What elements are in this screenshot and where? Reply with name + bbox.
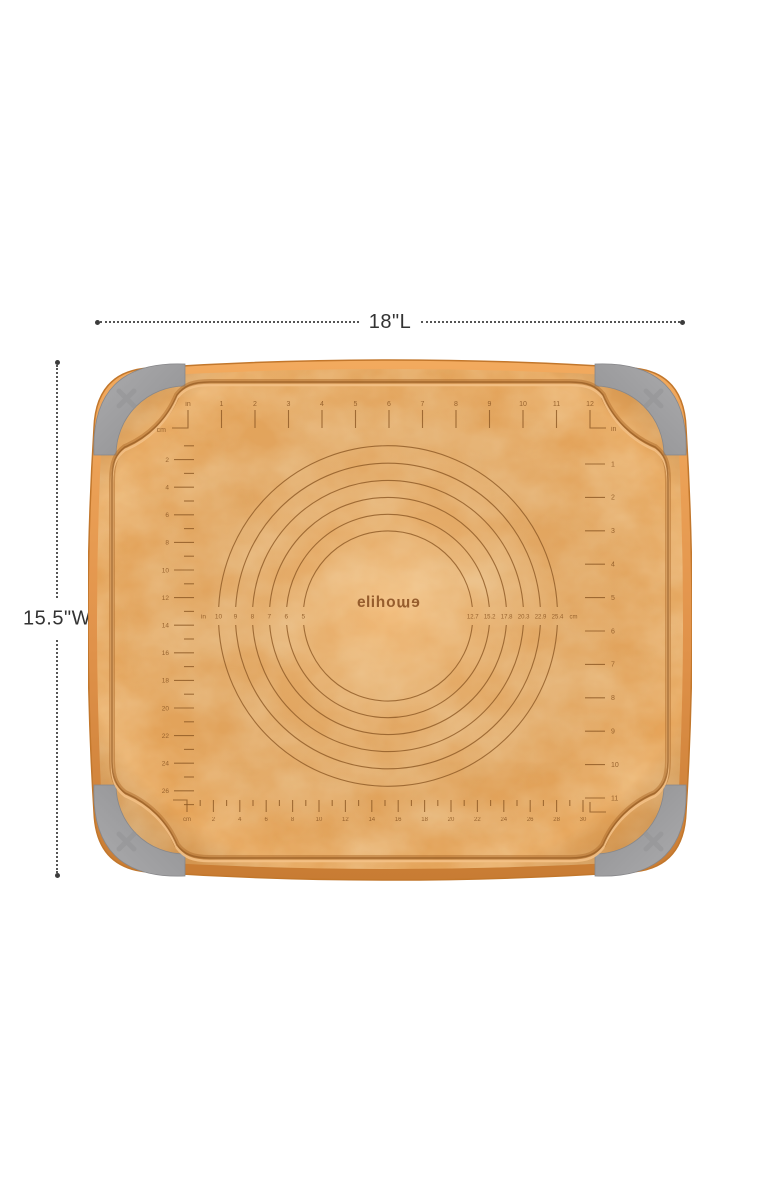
length-label: 18"L bbox=[359, 311, 421, 334]
dimension-endpoint-dot bbox=[680, 320, 685, 325]
ruler-number: 1 bbox=[220, 401, 224, 408]
logo-prefix: eli bbox=[357, 594, 375, 611]
ruler-number: 10 bbox=[519, 401, 527, 408]
ruler-number: 16 bbox=[162, 650, 170, 657]
unit-label: in bbox=[611, 426, 617, 433]
logo-letter: h bbox=[376, 594, 386, 611]
ruler-number: 20 bbox=[448, 817, 455, 823]
ruler-number: 30 bbox=[580, 817, 587, 823]
ruler-number: 20 bbox=[162, 705, 170, 712]
length-dimension: 18"L bbox=[95, 312, 685, 332]
ruler-number: 7 bbox=[421, 401, 425, 408]
unit-label: in bbox=[201, 614, 206, 621]
ruler-number: 3 bbox=[287, 401, 291, 408]
circle-diameter-in: 8 bbox=[251, 614, 255, 621]
ruler-number: 8 bbox=[165, 540, 169, 547]
circle-diameter-in: 6 bbox=[284, 614, 288, 621]
ruler-number: 5 bbox=[354, 401, 358, 408]
ruler-number: 18 bbox=[162, 678, 170, 685]
ruler-number: 8 bbox=[611, 695, 615, 702]
ruler-number: 9 bbox=[611, 729, 615, 736]
surface-shading bbox=[88, 358, 692, 882]
ruler-number: 12 bbox=[162, 595, 170, 602]
ruler-number: 26 bbox=[527, 817, 534, 823]
circle-diameter-cm: 22.9 bbox=[535, 615, 547, 621]
unit-label: cm bbox=[183, 817, 191, 823]
ruler-number: 11 bbox=[611, 795, 618, 802]
ruler-number: 2 bbox=[611, 495, 615, 502]
ruler-number: 22 bbox=[162, 733, 170, 740]
circle-diameter-cm: 25.4 bbox=[552, 615, 564, 621]
ruler-number: 4 bbox=[165, 485, 169, 492]
circle-diameter-cm: 20.3 bbox=[518, 615, 530, 621]
ruler-number: 2 bbox=[165, 457, 169, 464]
unit-label: in bbox=[185, 401, 191, 408]
ruler-number: 24 bbox=[162, 761, 170, 768]
ruler-number: 10 bbox=[316, 817, 323, 823]
ruler-number: 24 bbox=[500, 817, 507, 823]
ruler-number: 16 bbox=[395, 817, 402, 823]
ruler-number: 14 bbox=[162, 623, 170, 630]
logo-letter: e bbox=[411, 594, 420, 611]
ruler-number: 4 bbox=[611, 562, 615, 569]
ruler-number: 8 bbox=[454, 401, 458, 408]
ruler-number: 5 bbox=[611, 595, 615, 602]
circle-diameter-in: 9 bbox=[234, 614, 238, 621]
ruler-number: 28 bbox=[553, 817, 560, 823]
circle-diameter-cm: 15.2 bbox=[484, 615, 496, 621]
logo-letter: m bbox=[396, 595, 410, 612]
dimension-dashed-line bbox=[100, 321, 359, 323]
ruler-number: 3 bbox=[611, 528, 615, 535]
circle-diameter-in: 7 bbox=[268, 614, 272, 621]
product-image: 18"L 15.5"W bbox=[0, 0, 780, 1196]
logo-letter: o bbox=[386, 594, 396, 611]
ruler-number: 22 bbox=[474, 817, 481, 823]
ruler-number: 1 bbox=[611, 461, 615, 468]
ruler-number: 6 bbox=[165, 512, 169, 519]
circle-diameter-in: 5 bbox=[301, 614, 305, 621]
ruler-number: 10 bbox=[162, 567, 170, 574]
circle-diameter-in: 10 bbox=[215, 614, 223, 621]
cutting-board: 1234567891011in12in246810121416182022242… bbox=[88, 358, 692, 882]
ruler-number: 12 bbox=[342, 817, 349, 823]
width-dimension: 15.5"W bbox=[50, 360, 64, 878]
ruler-number: 9 bbox=[488, 401, 492, 408]
ruler-number: 2 bbox=[253, 401, 257, 408]
circle-diameter-cm: 12.7 bbox=[467, 615, 479, 621]
unit-label: cm bbox=[570, 615, 578, 621]
ruler-number: 10 bbox=[611, 762, 619, 769]
dimension-dashed-line bbox=[421, 321, 680, 323]
ruler-number: 11 bbox=[553, 401, 560, 408]
ruler-number: 6 bbox=[611, 628, 615, 635]
ruler-number: 12 bbox=[586, 401, 594, 408]
width-label: 15.5"W bbox=[21, 600, 93, 639]
ruler-number: 26 bbox=[162, 788, 170, 795]
dimension-endpoint-dot bbox=[55, 873, 60, 878]
ruler-number: 14 bbox=[368, 817, 375, 823]
circle-diameter-cm: 17.8 bbox=[501, 615, 513, 621]
ruler-number: 18 bbox=[421, 817, 428, 823]
ruler-number: 7 bbox=[611, 662, 615, 669]
brand-logo: elihome bbox=[357, 594, 420, 612]
ruler-number: 4 bbox=[320, 401, 324, 408]
ruler-number: 6 bbox=[387, 401, 391, 408]
unit-label: cm bbox=[157, 427, 167, 434]
